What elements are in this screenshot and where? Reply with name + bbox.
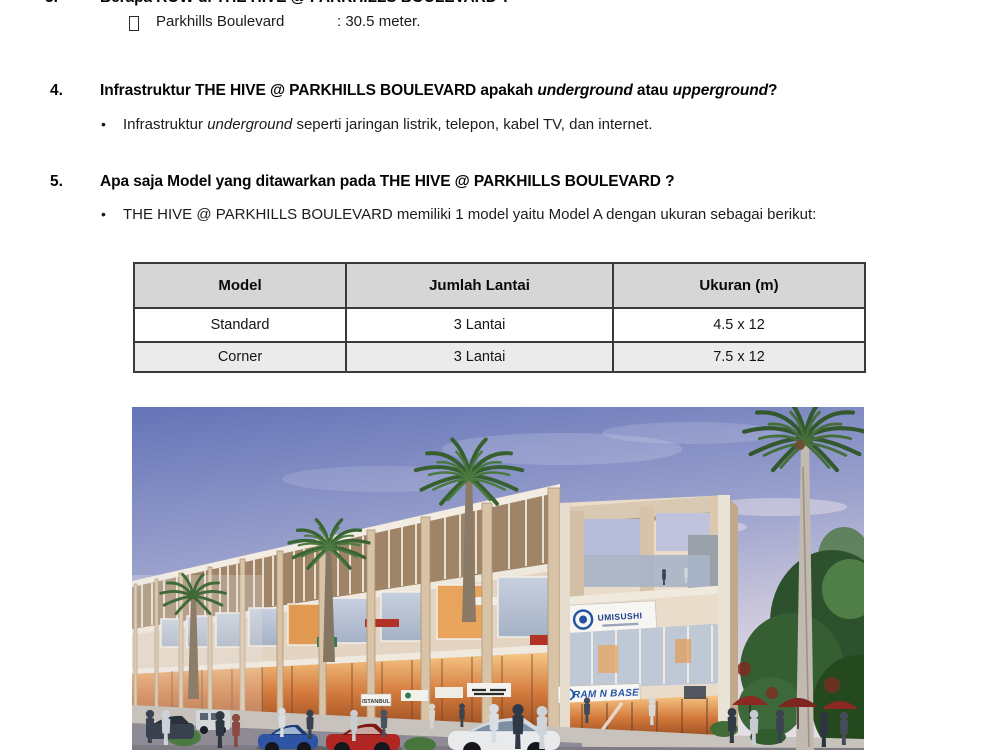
q4-italic-underground: underground: [537, 82, 632, 99]
question-5-heading: 5. Apa saja Model yang ditawarkan pada T…: [0, 173, 1000, 193]
sign-ramen: RAM N BASE: [573, 688, 640, 701]
bullet-icon: •: [101, 206, 106, 222]
table-header-model: Model: [134, 263, 346, 308]
q5-bullet-text: THE HIVE @ PARKHILLS BOULEVARD memiliki …: [123, 206, 816, 223]
question-number: 5.: [50, 173, 63, 191]
q4-text-mid: atau: [633, 82, 673, 99]
table-cell: Corner: [134, 342, 346, 372]
q4-text-post: ?: [768, 82, 777, 99]
table-cell: Standard: [134, 308, 346, 342]
table-cell: 3 Lantai: [346, 308, 613, 342]
missing-glyph-box-icon: [129, 16, 139, 31]
question-number: 3.: [45, 0, 58, 7]
question-4-heading: 4. Infrastruktur THE HIVE @ PARKHILLS BO…: [0, 82, 1000, 102]
figure-building-rendering: ISTANBUL UMISUSHI: [132, 407, 864, 750]
q4-italic-upperground: upperground: [673, 82, 768, 99]
table-cell: 7.5 x 12: [613, 342, 865, 372]
question-number: 4.: [50, 82, 63, 100]
document-page: { "page": {"width": 1000, "height": 750,…: [0, 0, 1000, 750]
table-row-standard: Standard 3 Lantai 4.5 x 12: [134, 308, 865, 342]
sign-istanbul: ISTANBUL: [362, 699, 390, 705]
rendering-scene: ISTANBUL UMISUSHI: [132, 407, 864, 750]
q4-bullet-post: seperti jaringan listrik, telepon, kabel…: [292, 116, 652, 133]
question-text: Apa saja Model yang ditawarkan pada THE …: [100, 173, 674, 191]
question-3-heading: 3. Berapa ROW di THE HIVE @ PARKHILLS BO…: [0, 0, 1000, 8]
answer-value: : 30.5 meter.: [337, 13, 420, 30]
answer-label: Parkhills Boulevard: [156, 13, 284, 30]
q4-bullet-text: Infrastruktur underground seperti jaring…: [123, 116, 653, 133]
table-header-row: Model Jumlah Lantai Ukuran (m): [134, 263, 865, 308]
q3-answer-row: Parkhills Boulevard : 30.5 meter.: [0, 13, 1000, 33]
table-cell: 4.5 x 12: [613, 308, 865, 342]
q4-bullet-italic: underground: [207, 116, 292, 133]
bullet-icon: •: [101, 116, 106, 132]
table-header-jumlah-lantai: Jumlah Lantai: [346, 263, 613, 308]
table-header-ukuran: Ukuran (m): [613, 263, 865, 308]
q4-bullet-pre: Infrastruktur: [123, 116, 207, 133]
table-row-corner: Corner 3 Lantai 7.5 x 12: [134, 342, 865, 372]
table-cell: 3 Lantai: [346, 342, 613, 372]
q5-bullet-row: • THE HIVE @ PARKHILLS BOULEVARD memilik…: [0, 206, 1000, 226]
question-text: Infrastruktur THE HIVE @ PARKHILLS BOULE…: [100, 82, 777, 100]
question-text: Berapa ROW di THE HIVE @ PARKHILLS BOULE…: [100, 0, 510, 7]
models-table: Model Jumlah Lantai Ukuran (m) Standard …: [133, 262, 866, 373]
q4-text-pre: Infrastruktur THE HIVE @ PARKHILLS BOULE…: [100, 82, 537, 99]
q4-bullet-row: • Infrastruktur underground seperti jari…: [0, 116, 1000, 136]
